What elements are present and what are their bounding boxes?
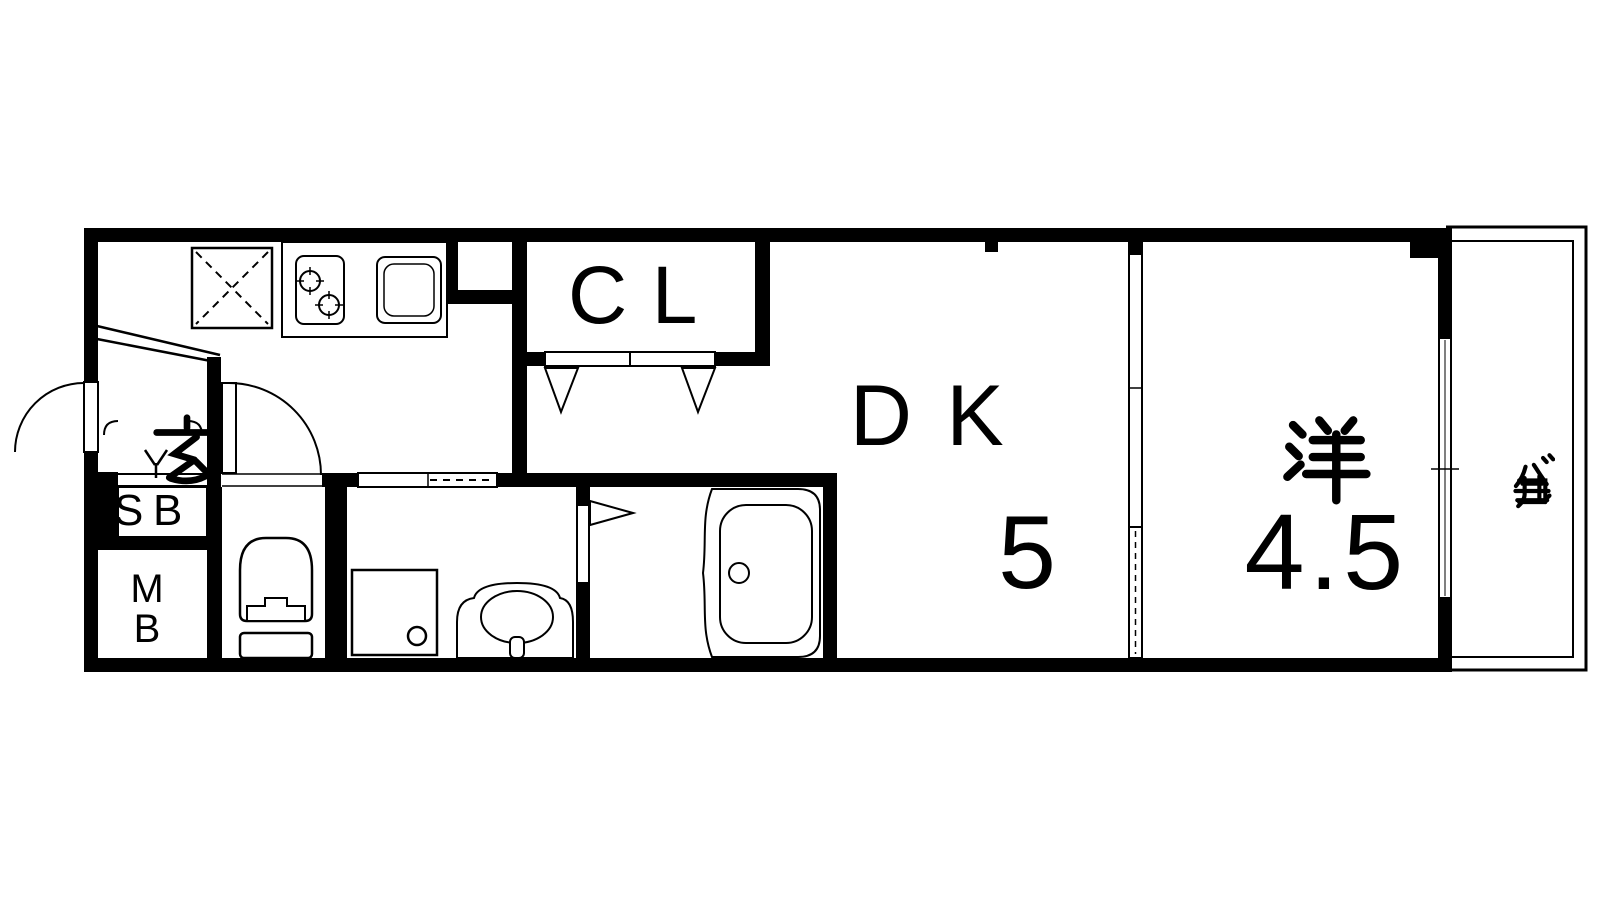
wall-bathroom-right <box>823 473 837 658</box>
kitchen-sink-inner <box>384 264 434 316</box>
closet-doors <box>545 352 715 412</box>
balcony-area <box>1431 227 1586 670</box>
balcony-outline-inner <box>1452 241 1573 657</box>
entrance-step-hook-left <box>104 421 118 435</box>
wall-sb-mb-divider <box>98 537 207 550</box>
label-shoe-box: SB <box>114 489 192 533</box>
cjk-glyph <box>1278 411 1372 505</box>
wall-water-area-b <box>497 473 837 487</box>
toilet-tank-icon <box>240 633 312 658</box>
wall-corner-block <box>1410 242 1452 258</box>
gas-stove-icon <box>296 256 344 324</box>
label-meter-box: MB <box>130 569 163 649</box>
kitchen <box>192 242 447 337</box>
wall-dk-top-nub <box>985 242 998 252</box>
toilet-door-frame <box>222 474 322 486</box>
wash-basin-bowl-icon <box>481 591 553 643</box>
wall-left-upper <box>84 228 98 383</box>
wall-niche-bottom <box>444 290 512 304</box>
toilet-door-leaf <box>222 383 236 473</box>
wall-right-lower <box>1438 598 1452 672</box>
bathroom <box>577 489 820 657</box>
cjk-glyph <box>1509 468 1555 514</box>
label-dining-kitchen: DK <box>850 373 1038 459</box>
bathroom-door-fold-icon <box>590 501 633 525</box>
partition-track-upper <box>1129 254 1142 527</box>
wall-top <box>84 228 1452 242</box>
cjk-glyph <box>150 414 224 488</box>
entrance-door-leaf <box>84 382 98 452</box>
label-western-size: 4.5 <box>1244 498 1407 606</box>
room-partition <box>1129 254 1142 658</box>
wall-closet-bottom-right <box>715 352 770 366</box>
toilet-door-swing-arc <box>229 383 321 475</box>
wall-toilet-right <box>325 487 347 658</box>
wall-closet-bottom-left <box>527 352 545 366</box>
wall-partition-nub <box>1128 242 1143 254</box>
entrance-door-swing-arc <box>15 383 84 452</box>
wall-toilet-left <box>207 487 222 658</box>
balcony-outline-outer <box>1446 227 1586 670</box>
bathtub-drain-icon <box>729 563 749 583</box>
wall-bottom <box>84 658 1452 672</box>
wall-closet-right <box>755 242 770 366</box>
toilet-room <box>222 383 322 658</box>
label-closet: CL <box>568 255 722 337</box>
closet-folding-door-icon <box>545 368 578 412</box>
wall-left-lower <box>84 452 98 672</box>
wash-basin-faucet-icon <box>510 637 524 658</box>
bathroom-door-leaf <box>577 505 589 583</box>
closet-folding-door-icon <box>682 368 715 412</box>
washroom <box>352 473 573 658</box>
washing-machine-drain-icon <box>408 627 426 645</box>
wall-water-area-a <box>322 473 358 487</box>
wall-kitchen-closet-divider <box>512 242 527 487</box>
floor-plan: CL DK 5 4.5 SB MB <box>0 0 1600 900</box>
label-dk-size: 5 <box>998 501 1056 605</box>
